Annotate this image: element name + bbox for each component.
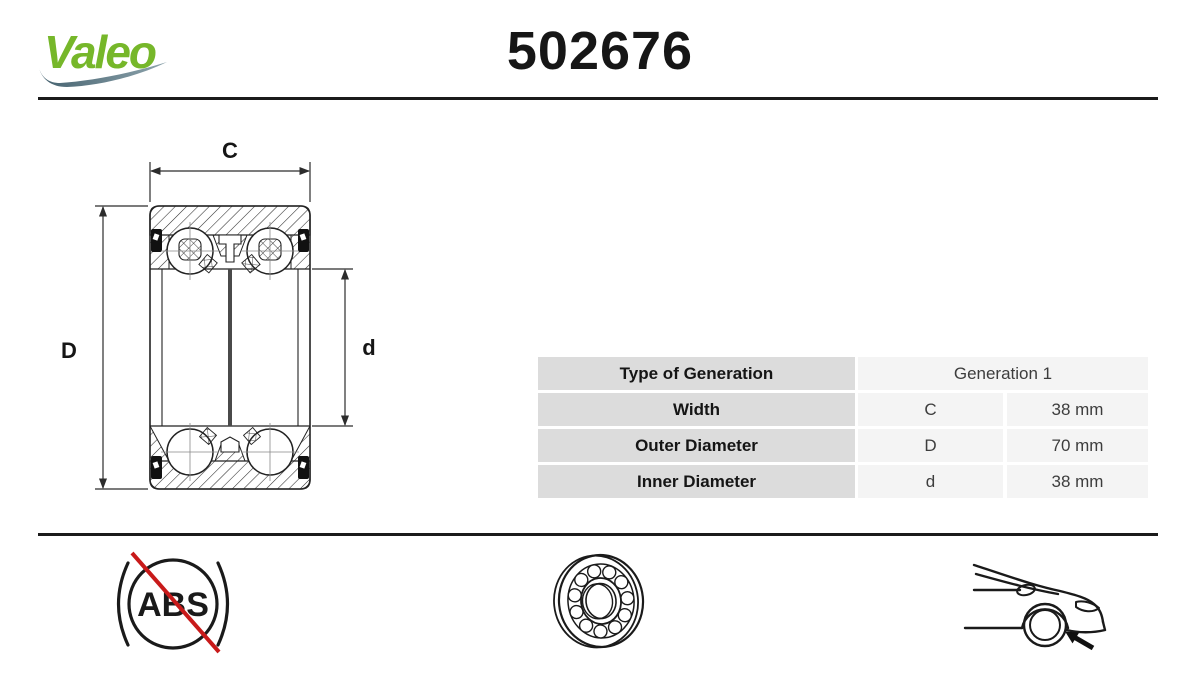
car-wheel-position-icon: [960, 545, 1140, 673]
abs-label: ABS: [137, 586, 209, 624]
dim-label-outer: D: [61, 338, 77, 363]
bearing-drawing-icon: C D d: [55, 133, 395, 515]
spec-value: 38 mm: [1007, 393, 1148, 426]
dim-label-c: C: [222, 138, 238, 163]
datasheet-page: Valeo 502676: [0, 0, 1200, 675]
dim-label-inner: d: [362, 335, 375, 360]
table-row: Outer Diameter D 70 mm: [538, 429, 1148, 462]
spec-symbol: D: [858, 429, 1003, 462]
bearing-icon: [545, 548, 665, 663]
spec-label: Outer Diameter: [538, 429, 855, 462]
spec-label: Type of Generation: [538, 357, 855, 390]
header-divider: [38, 97, 1158, 100]
part-number-title: 502676: [0, 20, 1200, 82]
spec-symbol: C: [858, 393, 1003, 426]
spec-label: Width: [538, 393, 855, 426]
spec-table: Type of Generation Generation 1 Width C …: [538, 357, 1148, 501]
no-abs-icon: ABS: [105, 540, 255, 672]
table-row: Inner Diameter d 38 mm: [538, 465, 1148, 498]
table-row: Type of Generation Generation 1: [538, 357, 1148, 390]
footer-divider: [38, 533, 1158, 536]
bearing-technical-drawing: C D d: [55, 133, 395, 515]
spec-value: 70 mm: [1007, 429, 1148, 462]
table-row: Width C 38 mm: [538, 393, 1148, 426]
spec-label: Inner Diameter: [538, 465, 855, 498]
spec-symbol: d: [858, 465, 1003, 498]
spec-value: 38 mm: [1007, 465, 1148, 498]
spec-value: Generation 1: [858, 357, 1148, 390]
